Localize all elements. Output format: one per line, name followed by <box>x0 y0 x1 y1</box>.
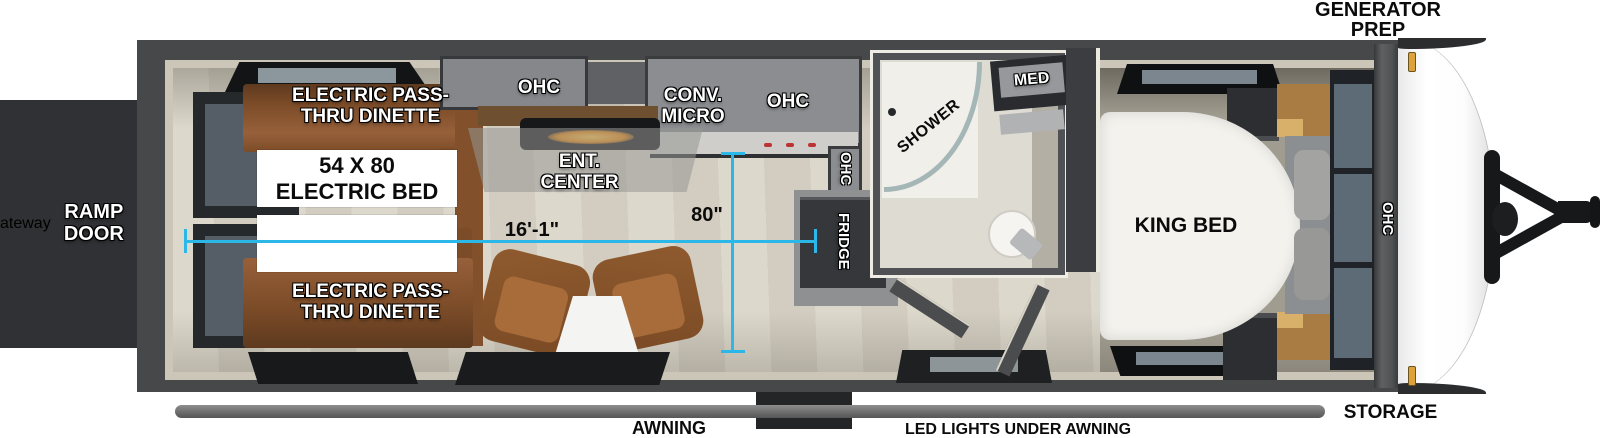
length-dimension-cap-right <box>814 229 817 253</box>
king-bed-label: KING BED <box>1116 214 1256 237</box>
led-lights-label: LED LIGHTS UNDER AWNING <box>898 421 1138 438</box>
width-dimension-label: 80" <box>686 204 728 226</box>
ramp-door-label: RAMP DOOR <box>51 202 137 245</box>
width-dimension-cap-bottom <box>721 350 745 353</box>
entry-door <box>896 350 1052 383</box>
marker-light-bottom-icon <box>1408 366 1416 386</box>
tongue-jack <box>1492 202 1518 236</box>
pillow-bottom <box>1294 228 1330 300</box>
front-cap <box>1398 40 1494 392</box>
generator-prep-label: GENERATOR PREP <box>1297 0 1459 40</box>
ent-center-label: ENT. CENTER <box>522 152 637 193</box>
cooktop-knob-icon <box>764 143 772 147</box>
front-cap-rim-top <box>1398 38 1486 49</box>
ohc-rear-label: OHC <box>510 78 568 99</box>
rv-floorplan-diagram: GENERATOR PREP atewayRAMP DOOR <box>0 0 1600 438</box>
electric-bed-callout: 54 X 80 ELECTRIC BED <box>257 150 457 207</box>
front-wardrobe <box>1330 70 1376 370</box>
nightstand-bottom <box>1277 312 1335 360</box>
conv-micro-label: CONV. MICRO <box>645 86 741 127</box>
ohc-kitchen-label: OHC <box>762 92 814 113</box>
length-dimension-label: 16'-1" <box>496 219 568 241</box>
dinette-bottom-label: ELECTRIC PASS-THRU DINETTE <box>288 282 453 323</box>
marker-light-top-icon <box>1408 52 1416 72</box>
fridge-label: FRIDGE <box>828 200 858 282</box>
pillow-top <box>1294 150 1330 220</box>
med-label: MED <box>1013 70 1050 90</box>
electric-bed-label: 54 X 80 ELECTRIC BED <box>267 153 447 204</box>
shower-drain-icon <box>888 108 896 116</box>
blank-callout-box <box>257 215 457 272</box>
hitch-coupler <box>1558 201 1594 223</box>
med-cabinet: MED <box>990 55 1074 112</box>
nightstand-top <box>1277 84 1335 137</box>
living-bottom-window <box>455 352 670 385</box>
hitch-coupler-end <box>1590 196 1600 228</box>
cooktop-knob-icon <box>808 143 816 147</box>
ohc-bedroom-label: OHC <box>1374 188 1400 250</box>
bedroom-divider-wall <box>1066 48 1100 272</box>
awning-bar <box>175 405 1325 418</box>
cabinet-joint <box>588 62 645 104</box>
dinette-top-label: ELECTRIC PASS-THRU DINETTE <box>288 86 453 127</box>
rear-bottom-window <box>248 352 418 384</box>
skylight-rear-glass <box>258 68 396 83</box>
length-dimension-cap-left <box>184 229 187 253</box>
ramp-door: atewayRAMP DOOR <box>0 100 137 348</box>
awning-label: AWNING <box>603 419 735 438</box>
skylight-bedroom-top-glass <box>1142 70 1257 84</box>
storage-label: STORAGE <box>1333 403 1448 424</box>
width-dimension-cap-top <box>721 152 745 155</box>
width-dimension-line <box>731 154 734 352</box>
cooktop-knob-icon <box>786 143 794 147</box>
ohc-kitchen-side-label: OHC <box>832 136 858 202</box>
